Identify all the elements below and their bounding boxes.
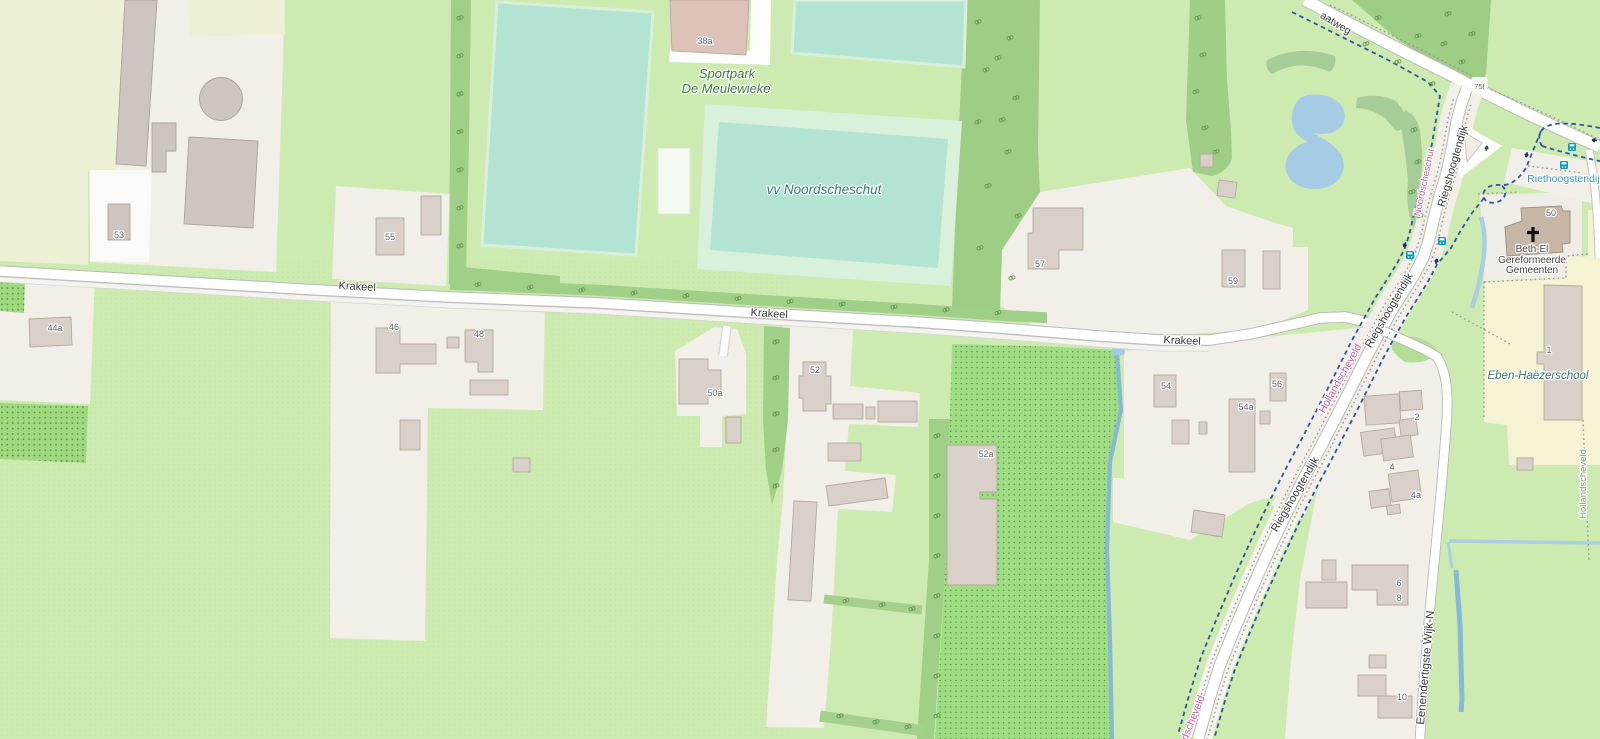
svg-text:75f: 75f — [1474, 82, 1485, 91]
svg-text:44a: 44a — [47, 323, 62, 333]
svg-text:1: 1 — [1546, 345, 1551, 355]
svg-text:55: 55 — [385, 232, 395, 242]
svg-text:Beth-El: Beth-El — [1516, 244, 1549, 255]
svg-text:4a: 4a — [1411, 490, 1421, 500]
svg-text:57: 57 — [1035, 259, 1045, 269]
svg-text:46: 46 — [389, 322, 399, 332]
svg-text:38a: 38a — [697, 36, 712, 46]
svg-text:52a: 52a — [978, 449, 993, 459]
svg-text:Gemeenten: Gemeenten — [1506, 265, 1558, 276]
svg-text:Krakeel: Krakeel — [1163, 334, 1201, 348]
svg-text:vv Noordscheschut: vv Noordscheschut — [767, 182, 883, 197]
svg-text:56: 56 — [1272, 379, 1282, 389]
svg-text:Sportpark: Sportpark — [699, 66, 757, 81]
svg-text:2: 2 — [1414, 412, 1419, 422]
svg-text:10: 10 — [1397, 692, 1407, 702]
svg-text:50a: 50a — [707, 388, 722, 398]
svg-text:59: 59 — [1228, 276, 1238, 286]
svg-text:8: 8 — [1396, 593, 1401, 603]
svg-text:52: 52 — [810, 365, 820, 375]
svg-text:Eben-Haëzerschool: Eben-Haëzerschool — [1487, 370, 1588, 382]
svg-text:De Meulewieke: De Meulewieke — [682, 81, 771, 96]
svg-text:6: 6 — [1396, 578, 1401, 588]
svg-text:53: 53 — [114, 230, 124, 240]
svg-text:54a: 54a — [1238, 402, 1253, 412]
svg-text:Hollandscheveld: Hollandscheveld — [1578, 449, 1589, 519]
svg-text:48: 48 — [474, 329, 484, 339]
svg-text:4: 4 — [1389, 462, 1394, 472]
svg-text:50: 50 — [1546, 208, 1556, 218]
svg-text:Riethoogstendijk: Riethoogstendijk — [1527, 173, 1600, 185]
svg-text:54: 54 — [1161, 381, 1171, 391]
svg-text:Krakeel: Krakeel — [338, 280, 376, 294]
